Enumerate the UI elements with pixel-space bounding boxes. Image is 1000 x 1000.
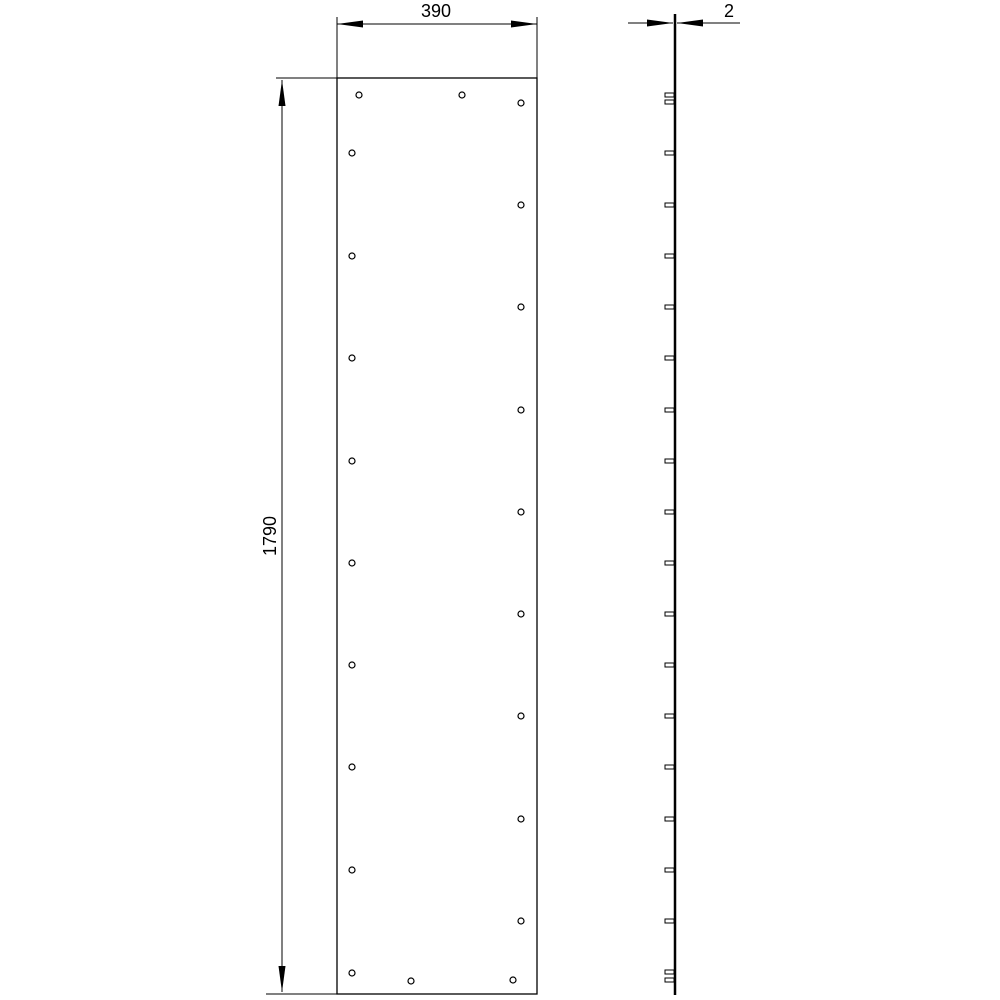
thickness-dimension: 2 bbox=[628, 1, 740, 27]
thickness-dimension-label: 2 bbox=[724, 1, 734, 21]
dimension-arrow bbox=[279, 966, 286, 992]
hole bbox=[518, 202, 524, 208]
dimensions: 39017902 bbox=[260, 1, 740, 994]
dimension-arrow bbox=[511, 21, 537, 28]
hole bbox=[349, 867, 355, 873]
hole-mark bbox=[665, 978, 674, 982]
hole-mark bbox=[665, 561, 674, 565]
hole bbox=[518, 304, 524, 310]
hole-mark bbox=[665, 203, 674, 207]
hole-mark bbox=[665, 510, 674, 514]
hole-mark bbox=[665, 765, 674, 769]
hole bbox=[510, 977, 516, 983]
hole bbox=[349, 458, 355, 464]
hole-mark bbox=[665, 970, 674, 974]
technical-drawing-canvas: 39017902 bbox=[0, 0, 1000, 1000]
hole-mark bbox=[665, 663, 674, 667]
side-view bbox=[665, 14, 675, 995]
dimension-arrow bbox=[677, 20, 703, 27]
hole-mark bbox=[665, 254, 674, 258]
hole bbox=[349, 662, 355, 668]
hole bbox=[349, 560, 355, 566]
hole bbox=[518, 816, 524, 822]
hole-mark bbox=[665, 408, 674, 412]
hole bbox=[518, 611, 524, 617]
panel-outline bbox=[337, 78, 537, 994]
hole bbox=[408, 978, 414, 984]
dimension-arrow bbox=[337, 21, 363, 28]
hole-mark bbox=[665, 817, 674, 821]
width-dimension: 390 bbox=[337, 1, 537, 78]
hole bbox=[518, 407, 524, 413]
hole bbox=[349, 970, 355, 976]
hole-mark bbox=[665, 305, 674, 309]
hole-mark bbox=[665, 100, 674, 104]
front-view bbox=[337, 78, 537, 994]
height-dimension: 1790 bbox=[260, 78, 338, 994]
drawing-page: 39017902 bbox=[0, 0, 1000, 1000]
hole bbox=[459, 92, 465, 98]
width-dimension-label: 390 bbox=[421, 1, 451, 21]
hole bbox=[518, 918, 524, 924]
hole-mark bbox=[665, 868, 674, 872]
dimension-arrow bbox=[279, 80, 286, 106]
dimension-arrow bbox=[647, 20, 673, 27]
hole bbox=[518, 509, 524, 515]
hole bbox=[518, 100, 524, 106]
hole bbox=[349, 253, 355, 259]
hole-mark bbox=[665, 919, 674, 923]
hole bbox=[349, 150, 355, 156]
hole-mark bbox=[665, 151, 674, 155]
hole bbox=[518, 713, 524, 719]
height-dimension-label: 1790 bbox=[260, 516, 280, 556]
hole bbox=[356, 92, 362, 98]
hole bbox=[349, 355, 355, 361]
hole-mark bbox=[665, 612, 674, 616]
hole bbox=[349, 764, 355, 770]
hole-mark bbox=[665, 459, 674, 463]
hole-mark bbox=[665, 356, 674, 360]
hole-mark bbox=[665, 93, 674, 97]
hole-mark bbox=[665, 714, 674, 718]
